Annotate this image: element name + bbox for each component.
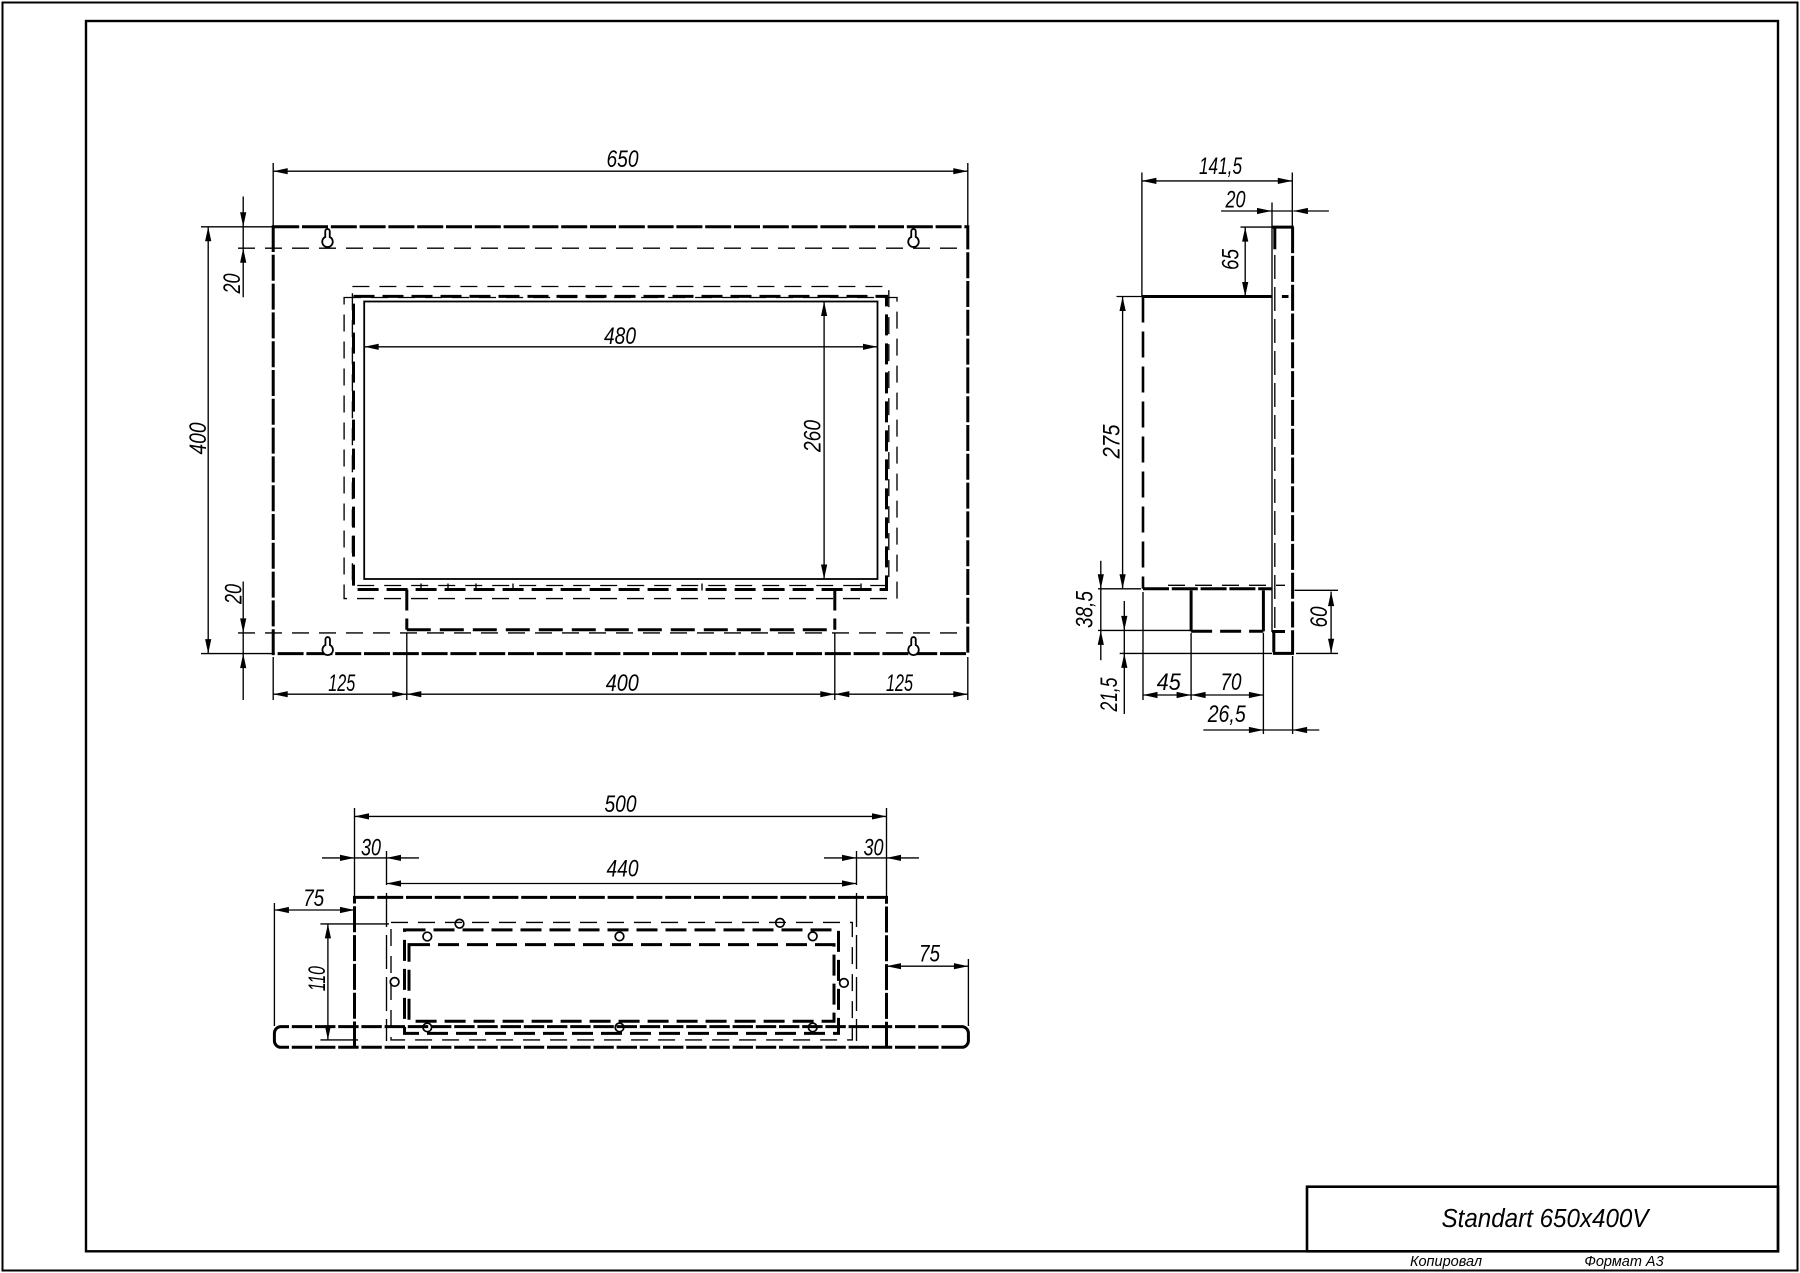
svg-text:Копировал: Копировал — [1410, 1254, 1482, 1270]
svg-text:440: 440 — [607, 856, 640, 883]
svg-text:30: 30 — [361, 835, 381, 862]
svg-text:70: 70 — [1221, 669, 1243, 696]
svg-text:21,5: 21,5 — [1096, 677, 1123, 712]
svg-text:500: 500 — [605, 791, 638, 818]
svg-text:30: 30 — [864, 835, 884, 862]
svg-text:20: 20 — [1225, 187, 1246, 214]
svg-text:75: 75 — [919, 941, 941, 968]
svg-text:110: 110 — [304, 966, 331, 991]
svg-text:26,5: 26,5 — [1207, 701, 1246, 728]
svg-text:75: 75 — [303, 885, 325, 912]
svg-text:20: 20 — [219, 273, 246, 294]
svg-text:400: 400 — [185, 422, 212, 455]
svg-text:480: 480 — [604, 323, 637, 350]
svg-text:400: 400 — [606, 670, 640, 697]
svg-text:650: 650 — [607, 146, 640, 173]
svg-text:125: 125 — [886, 670, 913, 697]
svg-text:260: 260 — [799, 419, 826, 452]
svg-text:141,5: 141,5 — [1199, 153, 1242, 180]
svg-text:Формат А3: Формат А3 — [1584, 1254, 1663, 1270]
svg-text:65: 65 — [1218, 248, 1245, 270]
svg-text:20: 20 — [221, 584, 248, 605]
svg-text:38,5: 38,5 — [1072, 590, 1099, 628]
svg-text:125: 125 — [328, 670, 355, 697]
svg-text:45: 45 — [1157, 669, 1182, 696]
svg-text:60: 60 — [1306, 606, 1333, 628]
svg-text:275: 275 — [1098, 424, 1125, 459]
svg-text:Standart 650x400V: Standart 650x400V — [1442, 1205, 1651, 1233]
